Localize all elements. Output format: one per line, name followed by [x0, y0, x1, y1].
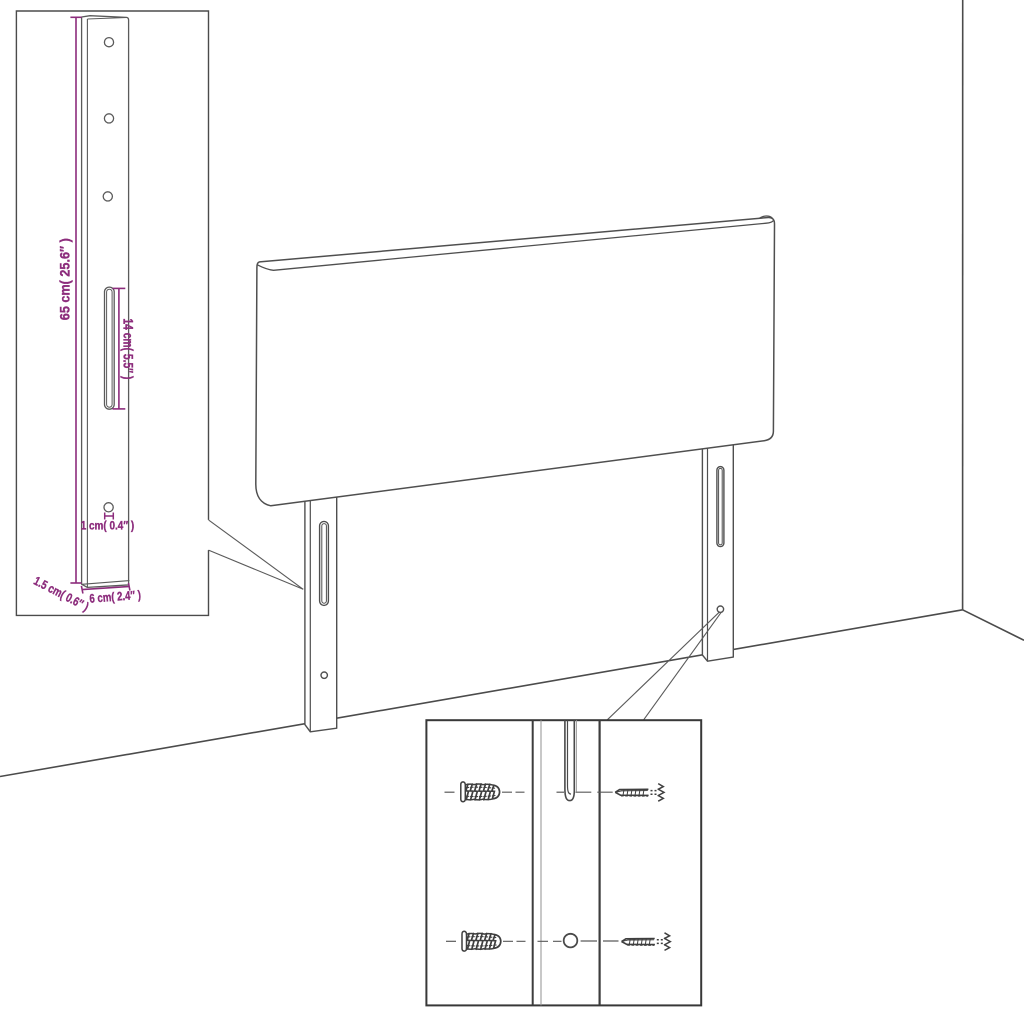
svg-text:14 cm( 5.5″ ): 14 cm( 5.5″ ): [120, 318, 135, 379]
svg-text:1 cm( 0.4″ ): 1 cm( 0.4″ ): [81, 518, 135, 532]
svg-text:65 cm( 25.6″ ): 65 cm( 25.6″ ): [57, 238, 72, 320]
